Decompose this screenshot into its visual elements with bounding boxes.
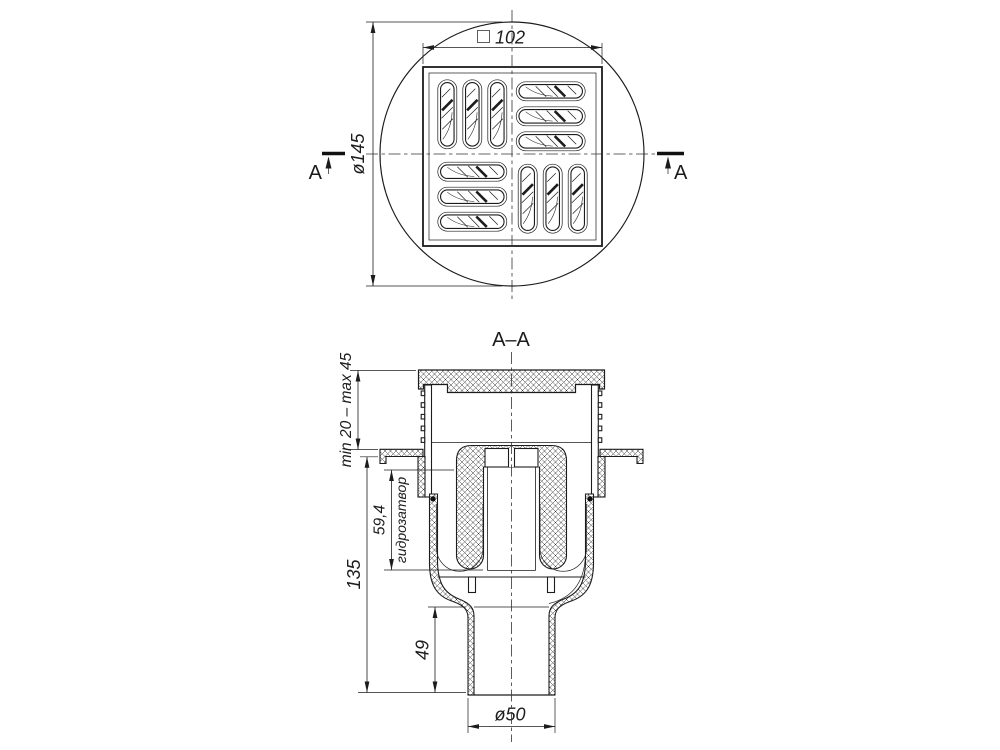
body-flange-right xyxy=(600,449,643,463)
square-symbol xyxy=(478,31,490,43)
outlet-length-value: 49 xyxy=(413,640,433,660)
seal-ring-left xyxy=(430,496,435,501)
overall-height-value: 135 xyxy=(344,559,364,590)
cut-letter-right: A xyxy=(674,162,688,184)
funnel-leg-left xyxy=(469,577,476,593)
diameter-value: ø145 xyxy=(348,132,368,174)
section-cut-marker-right: A xyxy=(657,154,688,185)
section-title: A–A xyxy=(492,329,530,351)
grate-plan xyxy=(423,67,602,246)
dim-square-102: 102 xyxy=(423,28,602,65)
grate-slots xyxy=(438,80,587,233)
body-collar-left xyxy=(418,457,425,498)
body-flange-left xyxy=(380,449,423,463)
drawing-sheet: 102 ø145 A A A–A xyxy=(0,0,1000,750)
bell-handle-right xyxy=(515,449,539,468)
section-cut-marker-left: A xyxy=(309,154,345,185)
seal-label: гидрозатвор xyxy=(393,477,409,563)
outlet-diameter-value: ø50 xyxy=(494,705,525,725)
seal-height-value: 59,4 xyxy=(372,505,389,536)
floor-drain-technical-drawing: 102 ø145 A A A–A xyxy=(0,0,1000,750)
seal-ring-right xyxy=(587,496,592,501)
top-view: 102 ø145 A A xyxy=(309,10,688,300)
funnel-leg-right xyxy=(548,577,555,593)
square-size-value: 102 xyxy=(495,28,525,48)
section-view: A–A xyxy=(338,329,643,742)
body-collar-right xyxy=(598,457,605,498)
bell-handle-left xyxy=(485,449,509,468)
adjust-range-value: min 20 – max 45 xyxy=(338,352,355,467)
dim-outlet-length: 49 xyxy=(413,607,467,693)
water-seal-bell xyxy=(437,446,587,572)
cut-letter-left: A xyxy=(309,162,323,184)
